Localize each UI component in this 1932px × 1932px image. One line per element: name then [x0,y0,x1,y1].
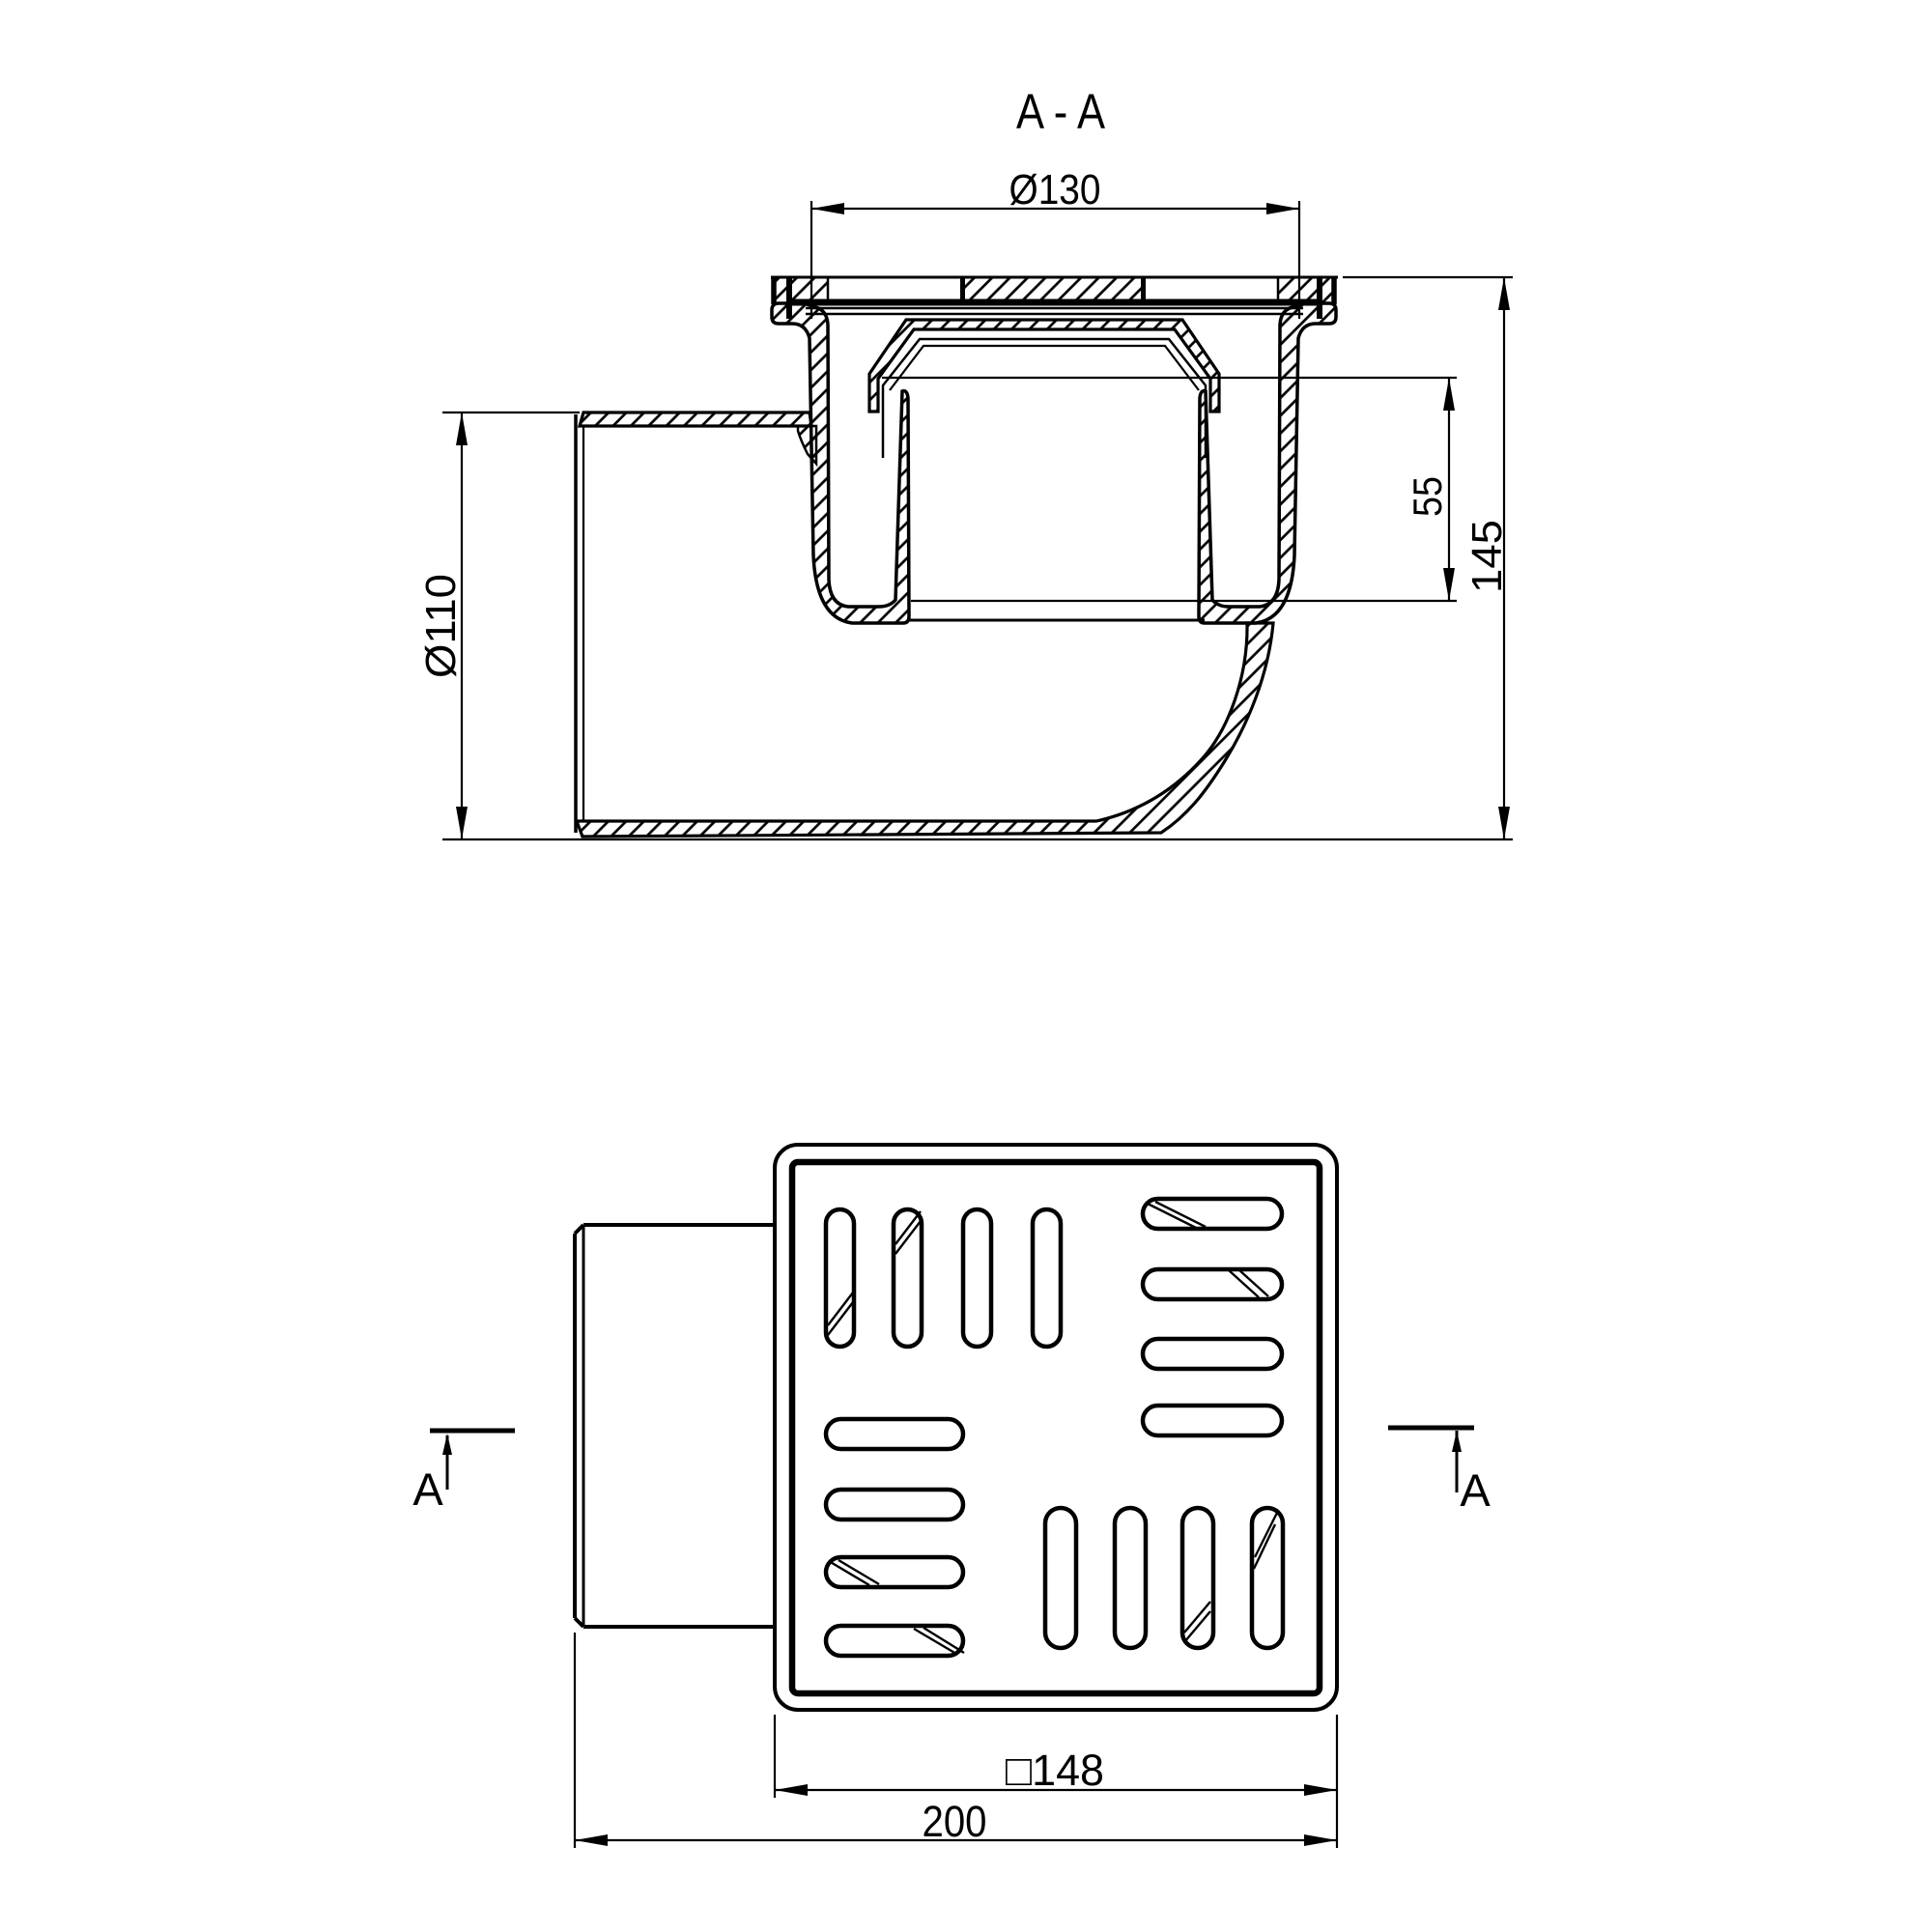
svg-text:A: A [1460,1464,1491,1516]
svg-text:Ø110: Ø110 [417,574,465,678]
svg-text:200: 200 [923,1797,987,1846]
svg-text:A: A [412,1463,443,1515]
svg-text:□148: □148 [1006,1746,1104,1795]
svg-text:55: 55 [1405,476,1450,517]
svg-text:Ø130: Ø130 [1009,166,1101,213]
svg-text:A - A: A - A [1016,84,1105,139]
